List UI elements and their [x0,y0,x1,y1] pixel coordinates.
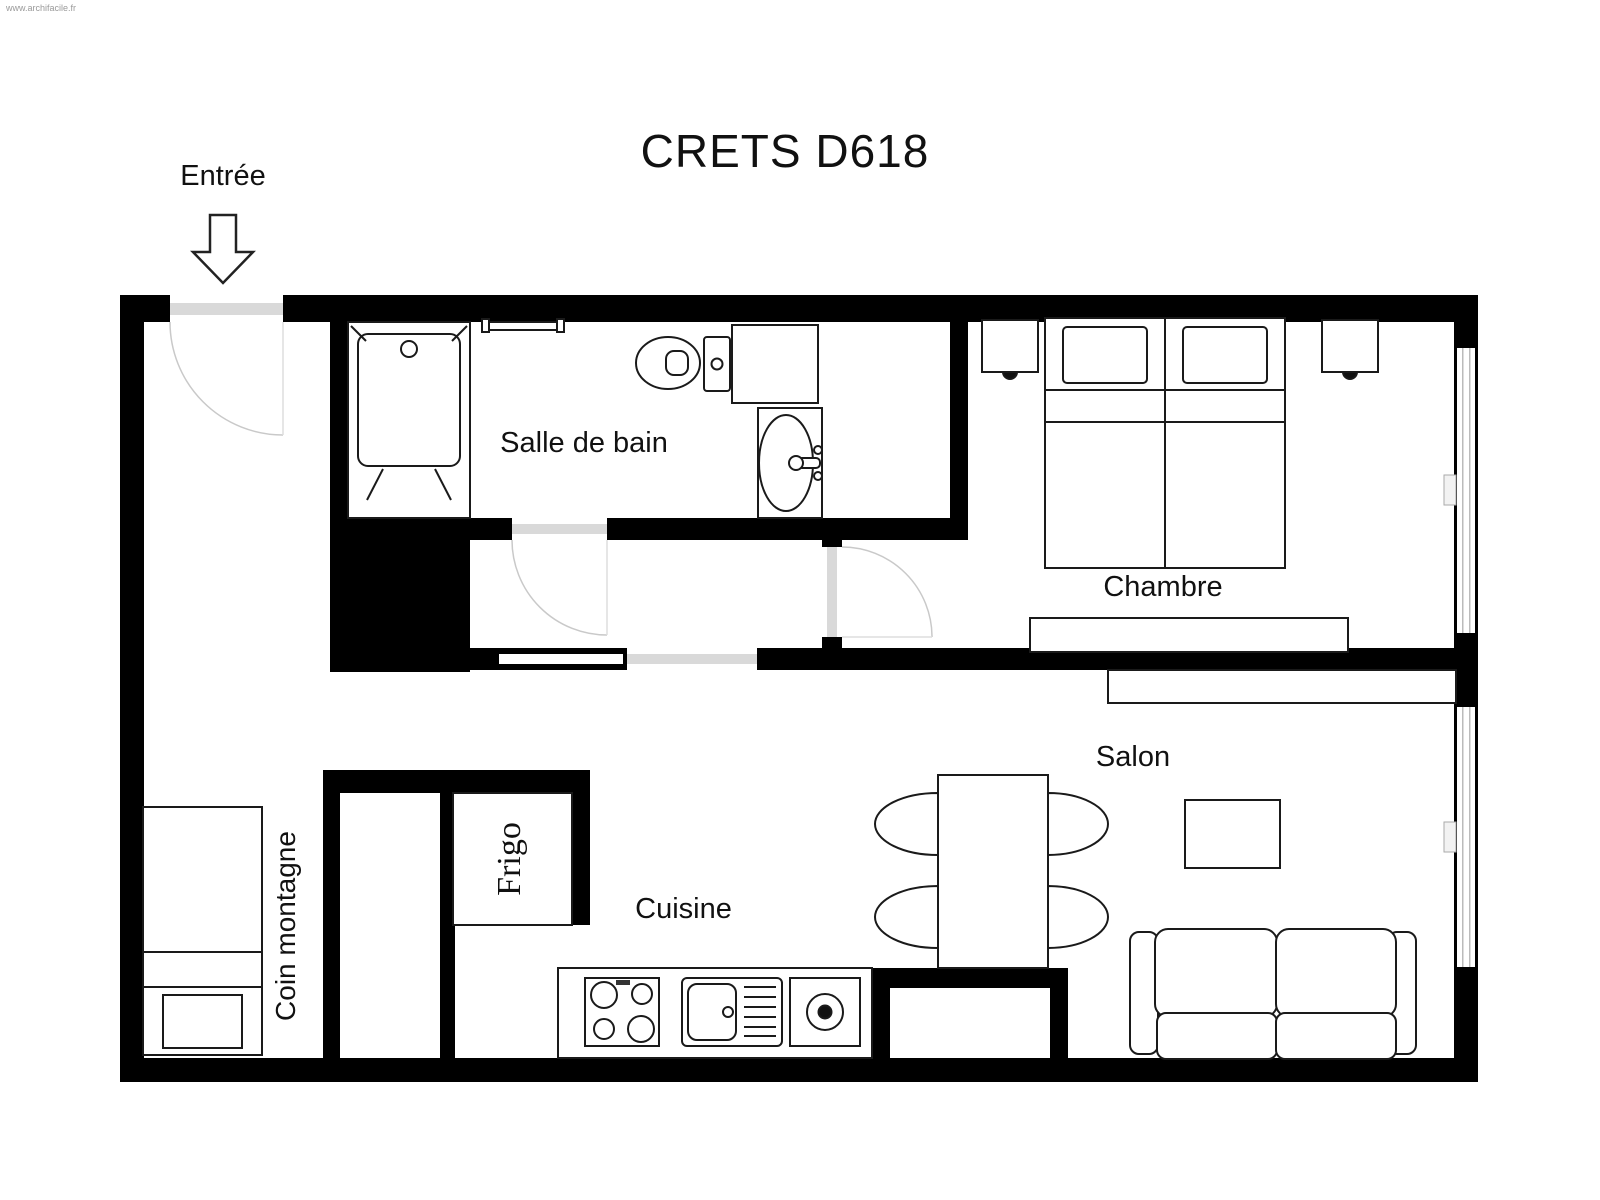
nightstand-right [1322,320,1378,379]
bathroom-fixtures [348,319,822,518]
pillow-right [1183,327,1267,383]
entry-arrow-icon [193,215,253,283]
label-kitchen: Cuisine [606,893,761,926]
label-bathroom: Salle de bain [469,427,699,460]
pillow-left [1063,327,1147,383]
wall-top-main [283,295,1478,322]
wall-bathroom-south-right [607,518,968,540]
entry-door-swing [170,322,283,435]
label-bedroom: Chambre [1043,571,1283,604]
wall-bedroom-door-bottom [822,637,842,670]
kitchen-sink [682,978,782,1046]
twin-beds [1045,318,1285,568]
washbasin [758,408,822,518]
dining-table [938,775,1048,968]
wall-bedroom-door-top [822,518,842,547]
wall-left [120,295,144,1082]
corner-side-table [163,995,242,1048]
plan-title: CRETS D618 [535,124,1035,178]
bathroom-door-threshold [512,518,607,540]
bedroom-door-threshold [822,547,842,637]
sofa-back-left [1155,929,1277,1017]
sofa-armrest-left [1130,932,1158,1054]
sofa-back-right [1276,929,1396,1017]
chair-top-left [875,793,938,855]
sofa-seat-left [1157,1013,1277,1059]
bathtub-drain [401,341,417,357]
toilet [636,337,730,391]
chair-top-right [1048,793,1108,855]
label-mountain-corner: Coin montagne [270,811,306,1041]
corner-bed [143,807,262,1055]
wall-hall-south-a [330,648,495,670]
wall-bottom [120,1058,1478,1082]
wall-kitchen-left [323,770,340,1058]
entry-door-threshold [170,295,283,322]
label-fridge: Frigo [491,789,533,929]
label-living-room: Salon [1053,741,1213,774]
sofa [1130,929,1416,1059]
floor-plan: www.archifacile.fr CRETS D618 Entrée Sal… [0,0,1600,1200]
chair-bottom-right [1048,886,1108,948]
window-latch [1444,822,1456,852]
toilet-cabinet [732,325,818,403]
sliding-door-pocket [495,648,627,670]
washbasin-faucet [789,456,803,470]
wall-shelf [1108,670,1456,703]
chair-bottom-left [875,886,938,948]
wall-closet-right [950,295,968,540]
sofa-seat-right [1276,1013,1396,1059]
watermark: www.archifacile.fr [6,3,206,13]
wall-fridge-right [572,770,590,925]
wall-right-block-top [1454,295,1478,348]
coffee-table [1185,800,1280,868]
hotplate [790,978,860,1046]
stove [585,978,659,1046]
bathtub [348,322,470,518]
living-room-window [1444,707,1478,967]
wall-right-block-mid [1454,633,1478,707]
window-latch [1444,475,1456,505]
bedroom-dresser [1030,618,1348,652]
nightstand-left [982,320,1038,379]
mountain-corner-furniture [143,807,262,1055]
hall-passage-threshold [627,648,757,670]
bedroom-window [1444,348,1478,633]
bedroom-door-swing [842,547,932,637]
bathroom-door-swing [512,540,607,635]
wall-kitchen-top [323,770,590,793]
peninsula-inset [890,988,1050,1058]
wall-right-block-bottom [1454,967,1478,1082]
label-entrance: Entrée [163,160,283,193]
